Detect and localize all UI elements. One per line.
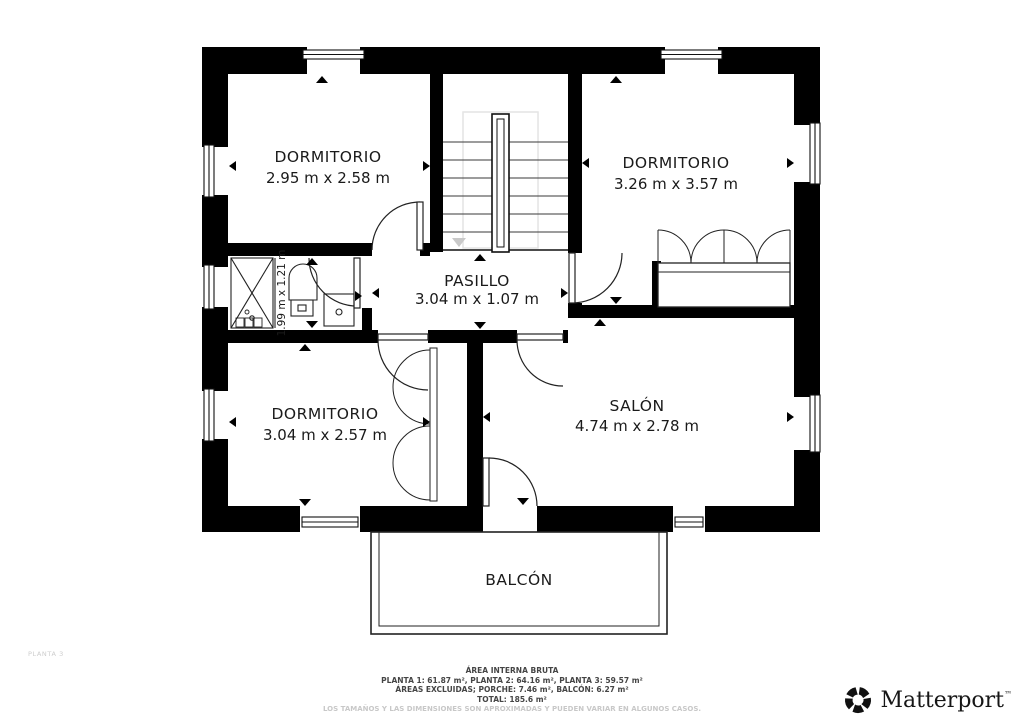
window-left-2 [204, 265, 214, 309]
room-name: DORMITORIO [271, 405, 378, 423]
staircase [443, 112, 568, 252]
stairs-direction-arrow [452, 238, 466, 247]
wall-stairs-left [430, 74, 443, 252]
room-dims: 3.04 m x 1.07 m [415, 290, 539, 308]
window-right-2 [810, 395, 820, 452]
room-name: PASILLO [444, 272, 510, 290]
room-name: SALÓN [609, 396, 664, 415]
footer-plants: PLANTA 1: 61.87 m², PLANTA 2: 64.16 m², … [0, 676, 1024, 686]
wall-right [794, 47, 820, 532]
bathroom-dims-label: 1.99 m x 1.21 m [276, 250, 288, 337]
room-name: DORMITORIO [622, 154, 729, 172]
window-right-1 [810, 123, 820, 184]
door-dormitorio-tl [372, 202, 423, 250]
room-name: BALCÓN [485, 570, 553, 589]
room-label-pasillo: PASILLO 3.04 m x 1.07 m [415, 272, 539, 308]
window-top-left [303, 50, 364, 59]
window-bottom-balcony [675, 517, 703, 527]
room-dims: 4.74 m x 2.78 m [575, 417, 699, 435]
matterport-logo: Matterport™ [843, 685, 1012, 715]
stairs-rail-inner [497, 119, 504, 247]
room-dims: 3.04 m x 2.57 m [263, 426, 387, 444]
matterport-wordmark: Matterport™ [880, 688, 1012, 713]
room-label-dormitorio-bl: DORMITORIO 3.04 m x 2.57 m [263, 405, 387, 444]
room-name: DORMITORIO [274, 148, 381, 166]
floor-label: PLANTA 3 [28, 650, 64, 658]
wardrobe-tr [658, 230, 790, 307]
closet-bl [393, 348, 437, 501]
room-dims: 2.95 m x 2.58 m [266, 169, 390, 187]
window-top-right [661, 50, 722, 59]
matterport-icon [843, 685, 873, 715]
window-bottom-left [302, 517, 358, 527]
wall-closet-salon [467, 343, 483, 506]
window-left-3 [204, 389, 214, 441]
room-label-salon: SALÓN 4.74 m x 2.78 m [575, 396, 699, 435]
bathroom [231, 258, 354, 328]
shower [231, 258, 273, 328]
floor-plan-page: DORMITORIO 2.95 m x 2.58 m DORMITORIO 3.… [0, 0, 1024, 723]
trademark-symbol: ™ [1004, 690, 1012, 699]
room-label-dormitorio-tr: DORMITORIO 3.26 m x 3.57 m [614, 154, 738, 193]
footer-title: ÁREA INTERNA BRUTA [0, 666, 1024, 676]
floor-plan-drawing: DORMITORIO 2.95 m x 2.58 m DORMITORIO 3.… [0, 0, 1024, 723]
sink [324, 294, 354, 326]
room-dims: 3.26 m x 3.57 m [614, 175, 738, 193]
window-left-1 [204, 145, 214, 197]
toilet [289, 264, 317, 316]
room-label-balcon: BALCÓN [485, 570, 553, 589]
room-label-dormitorio-tl: DORMITORIO 2.95 m x 2.58 m [266, 148, 390, 187]
door-balcony [483, 458, 537, 506]
wall-top [202, 47, 820, 74]
